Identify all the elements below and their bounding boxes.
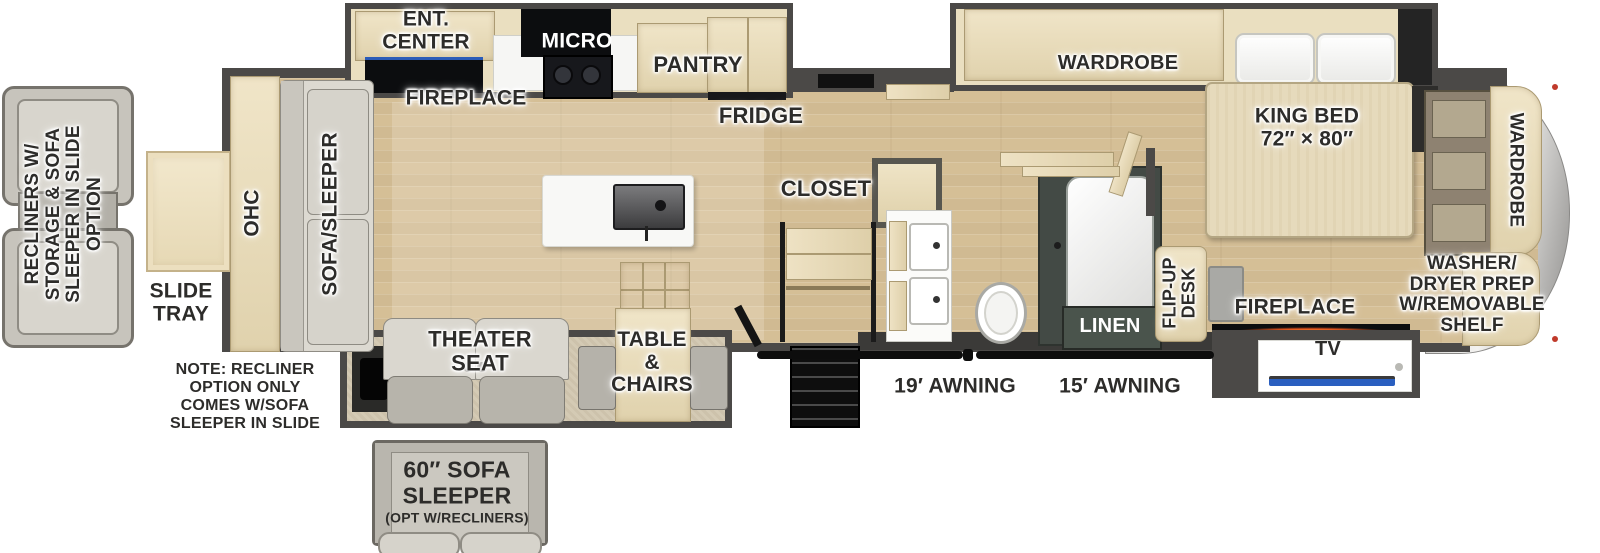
pantry-label: PANTRY — [653, 53, 742, 77]
awning-19-label: 19′ AWNING — [894, 376, 1016, 399]
kitchen-fireplace-label: FIREPLACE — [406, 88, 527, 111]
sink-drain — [655, 200, 666, 211]
burner — [553, 65, 573, 85]
flip-up-desk-label: FLIP-UP DESK — [1161, 257, 1200, 328]
ent-center-label: ENT. CENTER — [382, 8, 470, 53]
awning-rail-19 — [757, 351, 963, 359]
vanity-sink — [909, 277, 949, 325]
sofa-option-label-line2: SLEEPER — [403, 484, 512, 509]
table-chairs-label: TABLE & CHAIRS — [611, 329, 693, 397]
slide-tray — [146, 151, 231, 272]
fridge-label: FRIDGE — [719, 104, 803, 128]
kitchen-island — [542, 175, 694, 247]
vanity-sink — [909, 223, 949, 271]
theater-seat-label: THEATER SEAT — [428, 327, 532, 375]
sofa-option-cushion — [378, 532, 460, 553]
tv-label: TV — [1315, 339, 1341, 361]
wardrobe-shelf — [1432, 100, 1486, 138]
recliner-note: NOTE: RECLINER OPTION ONLY COMES W/SOFA … — [170, 361, 320, 433]
wall-recess — [818, 74, 874, 88]
clearance-light-top — [1552, 84, 1558, 90]
sofa-arm-left — [375, 443, 392, 543]
hutch-cabinet — [620, 262, 690, 314]
island-faucet — [645, 226, 648, 241]
vanity-door — [889, 221, 907, 271]
front-wardrobe-label: WARDROBE — [1505, 113, 1526, 228]
top-wall-gap — [788, 68, 954, 92]
closet-post — [780, 222, 785, 342]
sofa-sleeper-label: SOFA/SLEEPER — [320, 132, 343, 295]
clearance-light-bottom — [1552, 336, 1558, 342]
pillow-left — [1235, 33, 1315, 85]
pillow-right — [1316, 33, 1396, 85]
shelf-knob — [1395, 363, 1403, 371]
bedroom-wall-stub — [1146, 148, 1155, 216]
closet-shelves — [780, 222, 876, 342]
dinette-chair-right — [690, 346, 728, 410]
front-wardrobe-shelves — [1424, 90, 1494, 256]
shower-door-handle — [1054, 242, 1061, 249]
bedroom-step — [1000, 152, 1114, 167]
wardrobe-shelf — [1432, 204, 1486, 242]
awning-15-label: 15′ AWNING — [1059, 376, 1181, 399]
linen-label: LINEN — [1080, 316, 1141, 338]
island-sink — [613, 184, 685, 230]
closet-shelf — [786, 228, 872, 254]
sofa-arm-right — [528, 443, 545, 543]
bedroom-step — [1022, 166, 1120, 177]
burner — [581, 65, 601, 85]
sofa-option-label-line3: (OPT W/RECLINERS) — [385, 510, 528, 525]
toilet-seat — [984, 291, 1018, 335]
recliner-option-label: RECLINERS W/ STORAGE & SOFA SLEEPER IN S… — [23, 125, 105, 302]
bedroom-fireplace-label: FIREPLACE — [1235, 297, 1356, 320]
rv-floorplan: RECLINERS W/ STORAGE & SOFA SLEEPER IN S… — [0, 0, 1600, 553]
awning-rail-joint — [963, 349, 973, 361]
bedroom-slide — [950, 3, 1438, 91]
vanity-door — [889, 281, 907, 331]
sofa-option-label-line1: 60″ SOFA — [403, 458, 510, 483]
washer-dryer-label: WASHER/ DRYER PREP W/REMOVABLE SHELF — [1399, 254, 1544, 336]
closet-label: CLOSET — [781, 177, 871, 201]
tv-screen — [1269, 376, 1395, 386]
slide-tray-label: SLIDE TRAY — [150, 280, 213, 325]
closet-shelf — [786, 254, 872, 280]
micro-label: MICRO — [542, 31, 613, 54]
bedroom-wardrobe-label: WARDROBE — [1058, 53, 1179, 75]
fridge-door-split — [747, 18, 749, 92]
sink-drain — [933, 296, 940, 303]
sink-drain — [933, 242, 940, 249]
theater-cushion-right — [479, 376, 565, 424]
cooktop-stove — [543, 55, 613, 99]
wardrobe-shelf — [1432, 152, 1486, 190]
theater-cushion-left — [387, 376, 473, 424]
awning-rail-15 — [976, 351, 1214, 359]
hall-counter — [886, 84, 950, 100]
ohc-label: OHC — [242, 189, 265, 236]
fridge-shadow — [708, 92, 786, 100]
sofa-backrest — [281, 81, 304, 351]
sofa-back — [391, 443, 529, 453]
closet-rod — [786, 286, 870, 290]
king-bed-label: KING BED 72″ × 80″ — [1255, 105, 1359, 150]
toilet — [975, 282, 1027, 344]
nightstand-dark — [1398, 9, 1432, 85]
sofa-option-cushion — [460, 532, 542, 553]
bath-vanity — [886, 210, 952, 342]
